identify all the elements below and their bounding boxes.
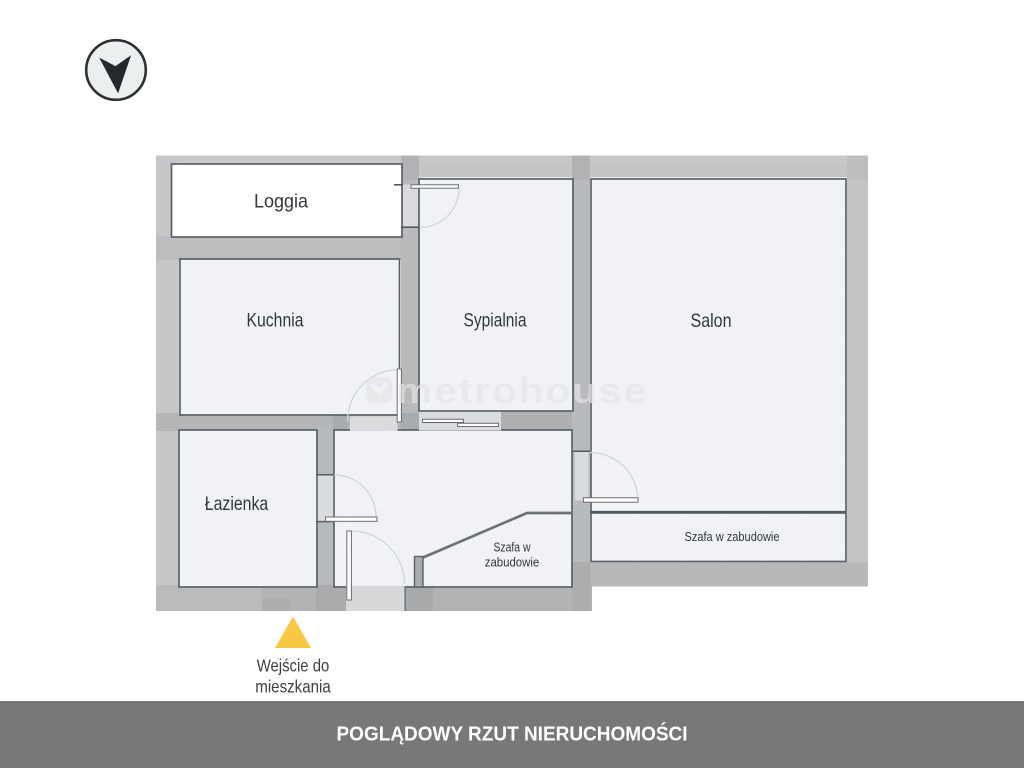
svg-text:Łazienka: Łazienka bbox=[205, 493, 269, 515]
svg-text:Wejście do: Wejście do bbox=[257, 656, 330, 676]
svg-text:Sypialnia: Sypialnia bbox=[464, 310, 527, 332]
svg-text:Szafa w zabudowie: Szafa w zabudowie bbox=[685, 529, 780, 544]
svg-text:POGLĄDOWY RZUT NIERUCHOMOŚCI: POGLĄDOWY RZUT NIERUCHOMOŚCI bbox=[337, 722, 688, 746]
svg-text:Szafa w: Szafa w bbox=[494, 540, 532, 555]
svg-text:mieszkania: mieszkania bbox=[255, 677, 331, 697]
svg-text:zabudowie: zabudowie bbox=[485, 555, 540, 570]
svg-text:Kuchnia: Kuchnia bbox=[247, 310, 304, 332]
svg-text:Salon: Salon bbox=[691, 310, 732, 332]
svg-text:metrohouse: metrohouse bbox=[396, 370, 648, 411]
svg-text:Loggia: Loggia bbox=[254, 191, 308, 213]
